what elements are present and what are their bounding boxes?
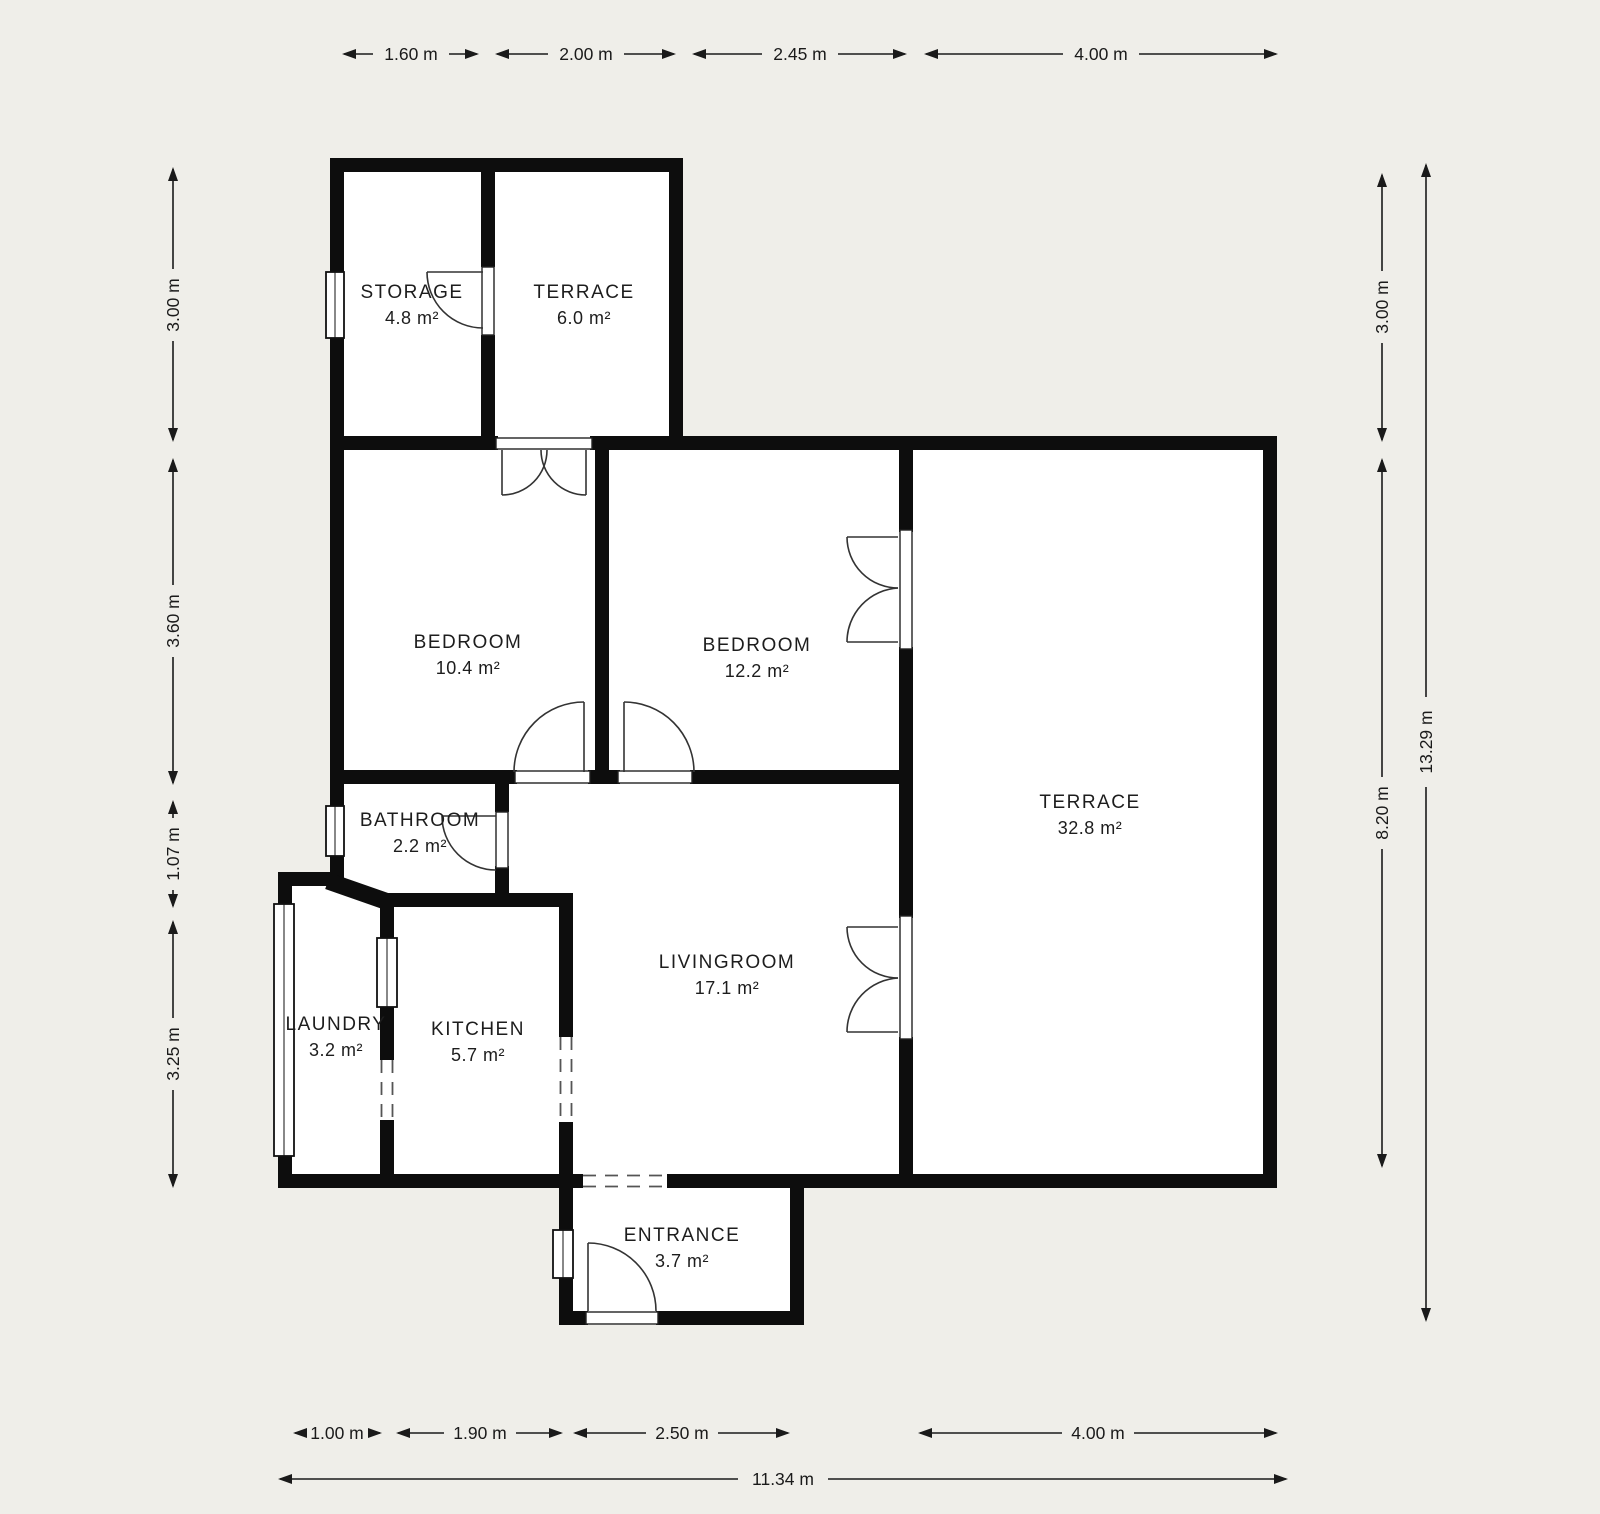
door-sill [900, 916, 912, 1039]
wall [380, 896, 394, 940]
room-area-laundry: 3.2 m² [309, 1040, 363, 1060]
room-label-entrance: ENTRANCE [624, 1225, 741, 1246]
room-label-bedroom-2: BEDROOM [703, 635, 812, 656]
wall [669, 172, 683, 436]
dim-left-4: 3.25 m [163, 1027, 183, 1081]
room-area-livingroom: 17.1 m² [695, 978, 760, 998]
wall [278, 1174, 583, 1188]
wall [1263, 436, 1277, 1188]
room-area-storage: 4.8 m² [385, 308, 439, 328]
dim-right-2: 8.20 m [1372, 786, 1392, 840]
wall [481, 172, 495, 267]
wall [899, 436, 913, 532]
room-area-bedroom-2: 12.2 m² [725, 661, 790, 681]
dim-left-2: 3.60 m [163, 594, 183, 648]
room-area-terrace-large: 32.8 m² [1058, 818, 1123, 838]
wall [330, 770, 517, 784]
wall [690, 770, 899, 784]
wall [595, 450, 609, 770]
dimensions-bottom: 1.00 m 1.90 m 2.50 m 4.00 m 11.34 m [278, 1423, 1288, 1489]
door-sill [900, 530, 912, 649]
room-label-livingroom: LIVINGROOM [659, 952, 795, 973]
door-sill [515, 771, 590, 783]
wall [278, 872, 292, 907]
wall [590, 436, 1277, 450]
room-label-terrace-small: TERRACE [533, 282, 634, 303]
wall [380, 1120, 394, 1174]
door-sill [586, 1312, 658, 1324]
wall [899, 647, 913, 918]
dim-right-total: 13.29 m [1416, 710, 1436, 773]
wall [559, 1122, 573, 1174]
dim-top-4: 4.00 m [1074, 44, 1128, 64]
dim-bottom-total: 11.34 m [752, 1469, 814, 1489]
wall [899, 1037, 913, 1188]
wall [588, 770, 620, 784]
room-area-kitchen: 5.7 m² [451, 1045, 505, 1065]
room-area-bedroom-1: 10.4 m² [436, 658, 501, 678]
dim-left-1: 3.00 m [163, 278, 183, 332]
dimensions-top: 1.60 m 2.00 m 2.45 m 4.00 m [342, 44, 1278, 64]
dim-bottom-3: 2.50 m [655, 1423, 709, 1443]
dim-top-3: 2.45 m [773, 44, 827, 64]
floorplan-page: STORAGE 4.8 m² TERRACE 6.0 m² BEDROOM 10… [0, 0, 1600, 1514]
door-sill [496, 812, 508, 868]
dim-right-1: 3.00 m [1372, 280, 1392, 334]
room-label-terrace-large: TERRACE [1039, 792, 1140, 813]
dimensions-left: 3.00 m 3.60 m 1.07 m 3.25 m [163, 167, 183, 1188]
door-sill [482, 267, 494, 335]
room-label-laundry: LAUNDRY [286, 1014, 387, 1035]
dim-left-3: 1.07 m [163, 827, 183, 881]
room-area-terrace-small: 6.0 m² [557, 308, 611, 328]
door-sill [496, 438, 592, 449]
room-label-bathroom: BATHROOM [360, 810, 480, 831]
room-label-kitchen: KITCHEN [431, 1019, 525, 1040]
wall [495, 784, 509, 812]
wall [330, 436, 498, 450]
dimensions-right: 3.00 m 8.20 m 13.29 m [1372, 163, 1436, 1322]
wall [481, 335, 495, 436]
room-label-storage: STORAGE [360, 282, 463, 303]
dim-top-1: 1.60 m [384, 44, 438, 64]
wall [559, 893, 573, 1037]
room-area-entrance: 3.7 m² [655, 1251, 709, 1271]
wall [330, 172, 344, 276]
dim-bottom-2: 1.90 m [453, 1423, 507, 1443]
dim-top-2: 2.00 m [559, 44, 613, 64]
wall [383, 893, 573, 907]
wall [330, 158, 683, 172]
wall [559, 1311, 588, 1325]
room-area-bathroom: 2.2 m² [393, 836, 447, 856]
wall [559, 1188, 573, 1234]
room-label-bedroom-1: BEDROOM [414, 632, 523, 653]
dim-bottom-4: 4.00 m [1071, 1423, 1125, 1443]
door-sill [618, 771, 692, 783]
floor-areas [278, 158, 1277, 1325]
wall [330, 338, 344, 809]
floor-top-block [330, 158, 683, 450]
floorplan-drawing: STORAGE 4.8 m² TERRACE 6.0 m² BEDROOM 10… [0, 0, 1600, 1514]
wall [667, 1174, 1277, 1188]
dim-bottom-1: 1.00 m [310, 1423, 364, 1443]
wall [790, 1188, 804, 1325]
wall [656, 1311, 804, 1325]
